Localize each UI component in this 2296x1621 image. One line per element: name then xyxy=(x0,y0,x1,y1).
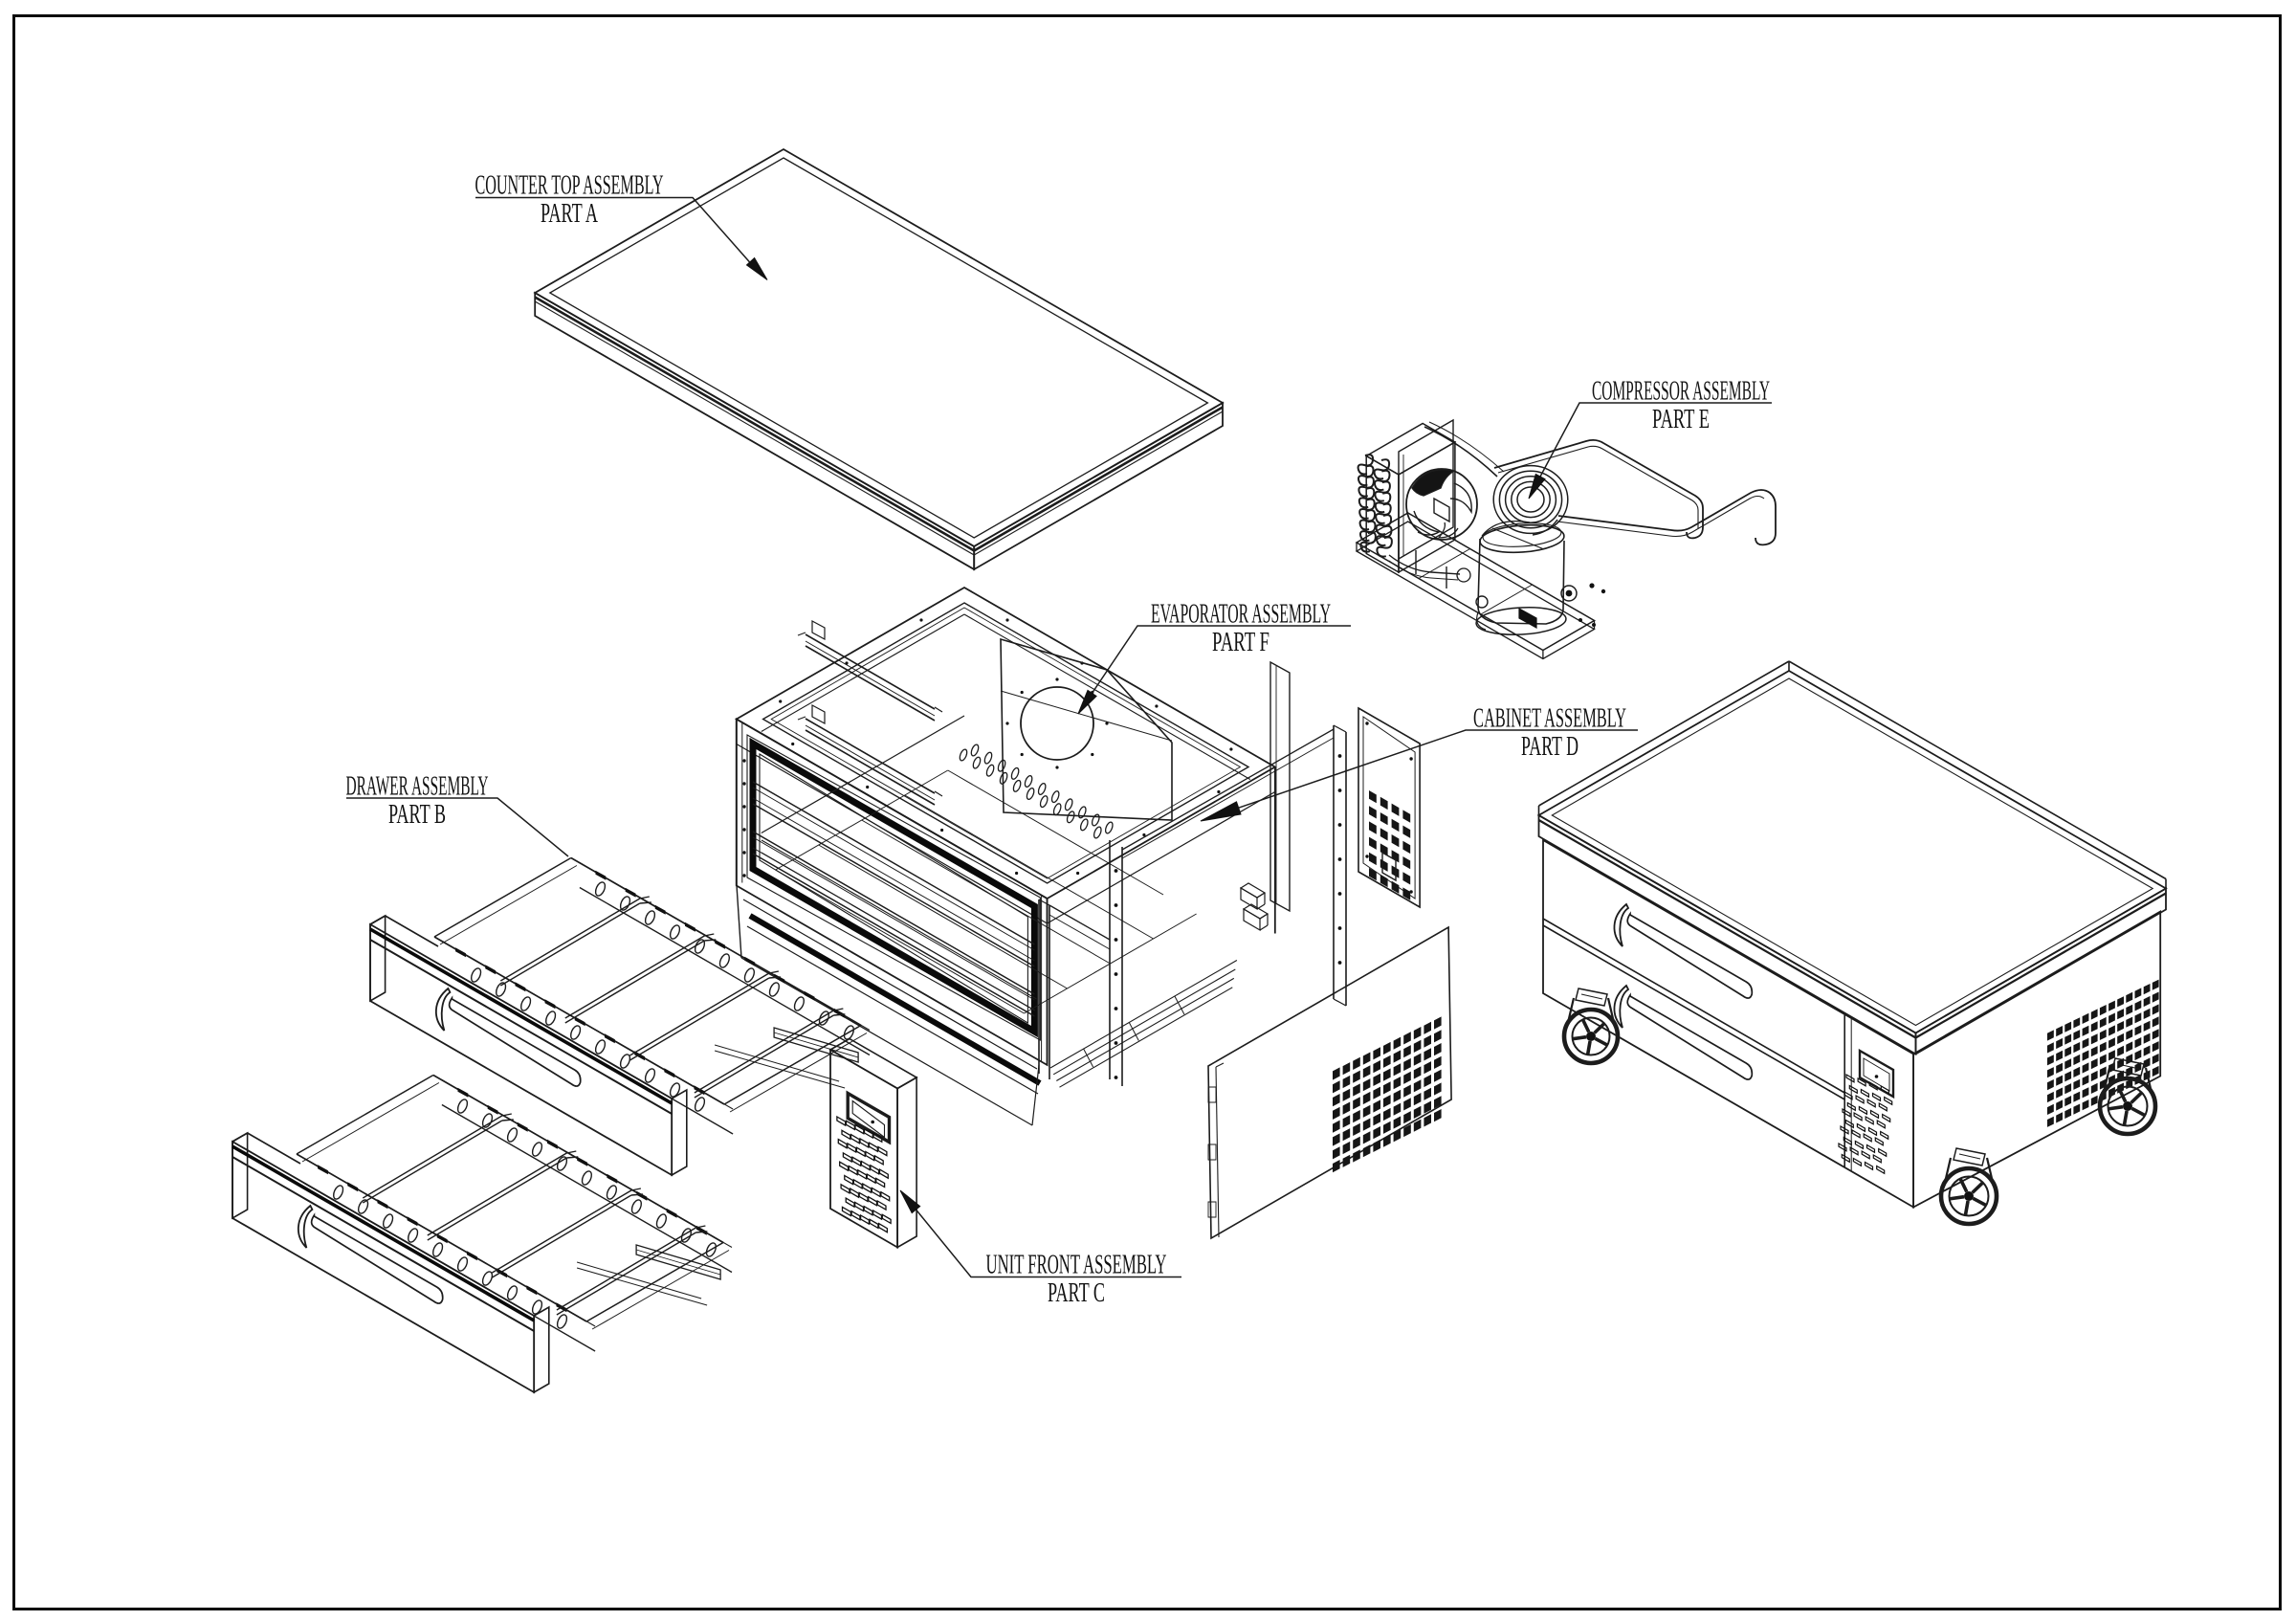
svg-text:COUNTER TOP ASSEMBLY: COUNTER TOP ASSEMBLY xyxy=(475,171,664,201)
svg-text:PART D: PART D xyxy=(1521,732,1578,762)
svg-text:PART A: PART A xyxy=(541,199,598,229)
svg-text:UNIT FRONT ASSEMBLY: UNIT FRONT ASSEMBLY xyxy=(986,1251,1167,1280)
svg-text:PART F: PART F xyxy=(1212,628,1269,657)
svg-text:COMPRESSOR ASSEMBLY: COMPRESSOR ASSEMBLY xyxy=(1592,377,1770,407)
svg-text:DRAWER ASSEMBLY: DRAWER ASSEMBLY xyxy=(346,772,489,802)
svg-text:PART C: PART C xyxy=(1048,1278,1105,1308)
svg-text:PART B: PART B xyxy=(388,800,446,830)
svg-text:EVAPORATOR ASSEMBLY: EVAPORATOR ASSEMBLY xyxy=(1151,600,1331,630)
svg-text:PART E: PART E xyxy=(1652,405,1710,434)
svg-text:CABINET ASSEMBLY: CABINET ASSEMBLY xyxy=(1473,704,1626,734)
